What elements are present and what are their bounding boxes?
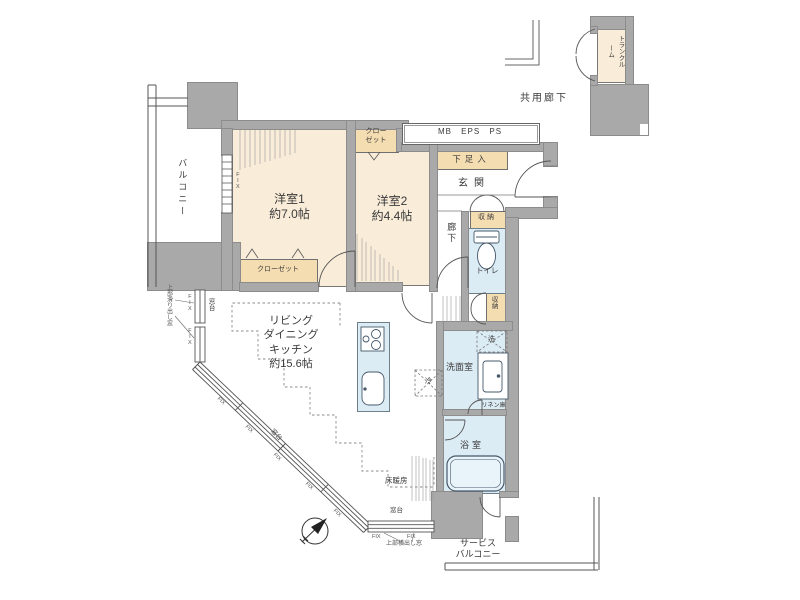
bedroom2-name: 洋室2 (352, 194, 432, 209)
label-entrance: 玄関 (446, 178, 502, 191)
wall-segment (462, 212, 468, 324)
wall-trunk (591, 76, 597, 85)
wall-segment (500, 492, 518, 497)
wall-segment (544, 143, 557, 166)
wall-segment (443, 410, 506, 415)
label-common-corridor: 共用廊下 (520, 93, 568, 106)
label-hallway: 廊下 (445, 222, 456, 244)
wall-segment (240, 283, 318, 291)
door-trunk (576, 29, 595, 81)
ldk-line1: リビング (230, 314, 352, 328)
label-shoe-cabinet: 下足入 (436, 154, 506, 165)
ldk-line3: キッチン (230, 343, 352, 357)
label-bedroom2: 洋室2 約4.4帖 (352, 194, 432, 224)
wall-segment (437, 322, 443, 492)
bedroom1-name: 洋室1 (232, 192, 347, 207)
wall-segment (506, 208, 557, 218)
label-fix-diag-5: FIX (331, 508, 342, 519)
wall-segment (222, 129, 232, 155)
bottom-window-band (368, 521, 434, 532)
label-fix-diag-4: FIX (303, 481, 314, 492)
label-window-note-bottom: 上部横出し窓 (386, 541, 422, 549)
wall-segment (432, 492, 482, 538)
label-fix-diag-2: FIX (243, 424, 254, 435)
label-bathroom: 浴室 (460, 440, 484, 451)
door-service-balcony (480, 497, 500, 517)
label-window-note-left: 上部滑り出し窓 (164, 284, 172, 326)
fix-windows-ldk-left (195, 290, 205, 362)
compass-icon (300, 518, 328, 544)
label-washroom: 洗面室 (446, 362, 473, 373)
label-linen: リネン庫 (479, 403, 508, 411)
door-storage-hall (471, 293, 486, 324)
label-trunk-room: トランクルーム (601, 33, 625, 69)
label-closet-bedroom2: クロー ゼット (355, 128, 397, 146)
service-balcony-line1: サービス (440, 538, 516, 549)
label-fix-bottom-1: FIX (372, 534, 381, 541)
bedroom2-size: 約4.4帖 (352, 209, 432, 224)
wall-segment (222, 213, 232, 290)
door-entrance (515, 161, 551, 197)
label-bedroom1: 洋室1 約7.0帖 (232, 192, 347, 222)
ceiling-hatch-hallway (443, 296, 460, 322)
wall-trunk (591, 27, 597, 33)
label-washer: 洗 (488, 336, 495, 345)
fix-window-bedroom1 (222, 155, 232, 213)
label-fix-bedroom1-window: FIX (234, 172, 241, 190)
label-fix-ldk-window1: FIX (186, 294, 193, 312)
label-closet-bedroom1: クローゼット (240, 266, 316, 275)
label-floor-heating: 床暖房 (385, 476, 408, 485)
ldk-size: 約15.6帖 (230, 357, 352, 371)
wall-notch (640, 124, 648, 135)
wall-segment (506, 218, 518, 497)
closet2-line2: ゼット (355, 137, 397, 146)
label-fix-diag-1: FIX (215, 396, 226, 407)
kitchen-counter (357, 322, 390, 412)
diagonal-window-band (193, 362, 372, 533)
wall-trunk (626, 17, 633, 87)
label-storage-entrance: 収納 (470, 214, 504, 223)
label-window-sill-bottom: 窓台 (390, 507, 403, 515)
service-balcony-line2: バルコニー (440, 549, 516, 560)
label-refrigerator: 冷 (425, 378, 432, 387)
label-mb-eps-ps: MB EPS PS (402, 127, 538, 137)
room-bathroom (443, 415, 508, 494)
label-fix-bottom-2: FIX (407, 534, 416, 541)
bedroom1-size: 約7.0帖 (232, 207, 347, 222)
label-toilet: トイレ (476, 266, 499, 275)
label-fix-ldk-window2: FIX (186, 328, 193, 346)
label-window-sill-left: 窓台 (206, 298, 214, 311)
ceiling-hatch-bath-side (412, 456, 433, 501)
room-toilet (468, 228, 508, 294)
ldk-line2: ダイニング (230, 328, 352, 342)
label-service-balcony: サービス バルコニー (440, 538, 516, 561)
door-ldk (402, 293, 432, 323)
wall-segment (356, 283, 402, 291)
door-storage-entrance (470, 195, 504, 212)
wall-segment (437, 322, 512, 330)
label-storage-hall: 収納 (489, 296, 497, 309)
label-ldk: リビング ダイニング キッチン 約15.6帖 (230, 314, 352, 371)
label-balcony: バルコニー (176, 158, 187, 218)
floor-plan: 共用廊下 トランクルーム MB EPS PS 下足入 玄関 廊下 収納 トイレ … (0, 0, 800, 600)
label-fix-diag-3: FIX (271, 452, 282, 463)
corridor-corner-outline (505, 20, 539, 65)
label-window-sill-diagonal: 窓台 (268, 428, 283, 443)
closet2-line1: クロー (355, 128, 397, 137)
